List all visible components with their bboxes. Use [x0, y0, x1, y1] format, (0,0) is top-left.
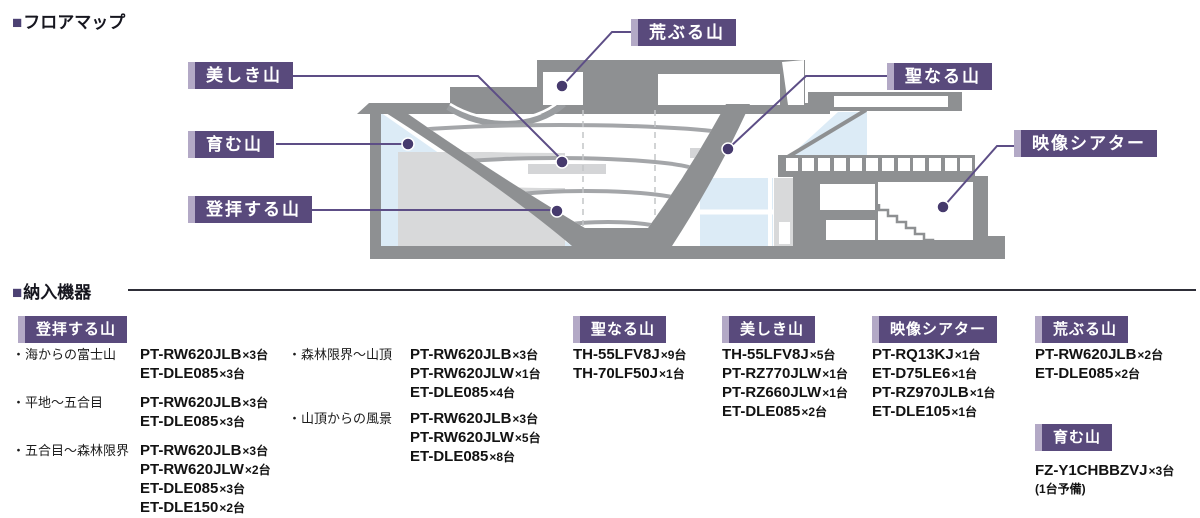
quantity: ×8台 — [489, 450, 515, 464]
model-number: PT-RW620JLW — [410, 429, 514, 446]
equipment-list: PT-RW620JLB×3台 ET-DLE085×3台 — [140, 345, 268, 383]
equipment-item: PT-RW620JLB×2台 — [1035, 345, 1163, 364]
eq-header-utsukushiki: 美しき山 — [722, 316, 815, 343]
model-number: ET-DLE085 — [410, 384, 488, 401]
equipment-item: TH-55LFV8J×9台 — [573, 345, 686, 364]
equipment-list: PT-RW620JLB×3台 PT-RW620JLW×5台 ET-DLE085×… — [410, 409, 541, 466]
eq-header-label: 荒ぶる山 — [1053, 321, 1117, 338]
quantity: ×2台 — [801, 405, 827, 419]
divider-rule — [128, 289, 1196, 291]
equipment-list: TH-55LFV8J×5台 PT-RZ770JLW×1台 PT-RZ660JLW… — [722, 345, 848, 421]
callout-utsukushiki-yama: 美しき山 — [188, 62, 293, 89]
equipment-item: ET-DLE085×2台 — [1035, 364, 1163, 383]
quantity: ×1台 — [951, 367, 977, 381]
model-number: PT-RZ970JLB — [872, 384, 969, 401]
quantity: ×3台 — [242, 348, 268, 362]
equipment-item: PT-RQ13KJ×1台 — [872, 345, 995, 364]
quantity: ×1台 — [515, 367, 541, 381]
equipment-note: (1台予備) — [1035, 481, 1086, 497]
equipment-item: ET-DLE085×2台 — [722, 402, 848, 421]
eq-header-araburu: 荒ぶる山 — [1035, 316, 1128, 343]
callout-label: 登拝する山 — [206, 200, 301, 219]
quantity: ×2台 — [1114, 367, 1140, 381]
equipment-item: PT-RW620JLB×3台 — [140, 393, 268, 412]
model-number: ET-DLE105 — [872, 403, 950, 420]
model-number: PT-RW620JLB — [140, 346, 241, 363]
quantity: ×3台 — [1149, 464, 1175, 478]
equipment-item: PT-RZ770JLW×1台 — [722, 364, 848, 383]
model-number: FZ-Y1CHBBZVJ — [1035, 462, 1148, 479]
model-number: PT-RZ770JLW — [722, 365, 821, 382]
equipment-list: TH-55LFV8J×9台 TH-70LF50J×1台 — [573, 345, 686, 383]
dot-tohai — [551, 205, 563, 217]
equipment-list: PT-RW620JLB×2台 ET-DLE085×2台 — [1035, 345, 1163, 383]
eq-header-eizo: 映像シアター — [872, 316, 997, 343]
area-label: ・山頂からの風景 — [288, 409, 392, 428]
eq-header-label: 聖なる山 — [591, 321, 655, 338]
eq-header-seinaru: 聖なる山 — [573, 316, 666, 343]
equipment-item: ET-D75LE6×1台 — [872, 364, 995, 383]
quantity: ×1台 — [951, 405, 977, 419]
model-number: ET-DLE085 — [410, 448, 488, 465]
eq-header-label: 登拝する山 — [36, 321, 116, 338]
equipment-item: PT-RW620JLB×3台 — [140, 441, 271, 460]
equipment-item: ET-DLE085×4台 — [410, 383, 541, 402]
equipment-item: ET-DLE085×3台 — [140, 479, 271, 498]
theater-block — [793, 176, 988, 250]
model-number: PT-RW620JLW — [410, 365, 514, 382]
model-number: PT-RW620JLB — [1035, 346, 1136, 363]
equipment-list: PT-RW620JLB×3台 ET-DLE085×3台 — [140, 393, 268, 431]
equipment-item: PT-RZ660JLW×1台 — [722, 383, 848, 402]
model-number: ET-DLE085 — [1035, 365, 1113, 382]
equipment-list: PT-RW620JLB×3台 PT-RW620JLW×1台 ET-DLE085×… — [410, 345, 541, 402]
equipment-item: PT-RW620JLB×3台 — [410, 345, 541, 364]
dot-utsukushiki — [556, 156, 568, 168]
quantity: ×5台 — [515, 431, 541, 445]
model-number: PT-RW620JLB — [140, 394, 241, 411]
equipment-title-text: 納入機器 — [23, 283, 91, 302]
equipment-item: PT-RW620JLB×3台 — [410, 409, 541, 428]
model-number: PT-RQ13KJ — [872, 346, 954, 363]
callout-eizo-theater: 映像シアター — [1014, 130, 1157, 157]
dot-araburu — [556, 80, 568, 92]
equipment-item: PT-RW620JLW×5台 — [410, 428, 541, 447]
eq-header-label: 育む山 — [1053, 429, 1101, 446]
equipment-title: ■納入機器 — [12, 278, 91, 303]
quantity: ×1台 — [970, 386, 996, 400]
model-number: TH-70LF50J — [573, 365, 658, 382]
equipment-item: ET-DLE150×2台 — [140, 498, 271, 517]
model-number: ET-DLE085 — [140, 480, 218, 497]
area-label: ・海からの富士山 — [12, 345, 116, 364]
model-number: TH-55LFV8J — [722, 346, 809, 363]
equipment-list: FZ-Y1CHBBZVJ×3台 — [1035, 461, 1174, 480]
quantity: ×1台 — [822, 386, 848, 400]
eq-header-label: 美しき山 — [740, 321, 804, 338]
callout-label: 荒ぶる山 — [649, 23, 725, 42]
quantity: ×4台 — [489, 386, 515, 400]
quantity: ×3台 — [242, 444, 268, 458]
quantity: ×3台 — [242, 396, 268, 410]
callout-tohai-suru-yama: 登拝する山 — [188, 196, 312, 223]
equipment-item: PT-RW620JLW×2台 — [140, 460, 271, 479]
eq-header-tohai: 登拝する山 — [18, 316, 127, 343]
eq-header-hagukumu: 育む山 — [1035, 424, 1112, 451]
dot-eizo — [937, 201, 949, 213]
quantity: ×3台 — [219, 415, 245, 429]
quantity: ×3台 — [219, 482, 245, 496]
quantity: ×3台 — [219, 367, 245, 381]
callout-label: 聖なる山 — [905, 67, 981, 86]
eq-header-label: 映像シアター — [890, 321, 986, 338]
callout-label: 育む山 — [206, 135, 263, 154]
quantity: ×2台 — [245, 463, 271, 477]
quantity: ×3台 — [512, 348, 538, 362]
area-label: ・森林限界～山頂 — [288, 345, 392, 364]
dot-hagukumu — [402, 138, 414, 150]
model-number: PT-RZ660JLW — [722, 384, 821, 401]
equipment-item: ET-DLE105×1台 — [872, 402, 995, 421]
model-number: PT-RW620JLB — [140, 442, 241, 459]
model-number: PT-RW620JLW — [140, 461, 244, 478]
quantity: ×3台 — [512, 412, 538, 426]
equipment-item: PT-RW620JLW×1台 — [410, 364, 541, 383]
callout-label: 映像シアター — [1032, 134, 1146, 153]
quantity: ×9台 — [661, 348, 687, 362]
area-label: ・五合目～森林限界 — [12, 441, 129, 460]
model-number: ET-DLE085 — [722, 403, 800, 420]
equipment-item: TH-55LFV8J×5台 — [722, 345, 848, 364]
equipment-list: PT-RW620JLB×3台 PT-RW620JLW×2台 ET-DLE085×… — [140, 441, 271, 517]
callout-araburu-yama: 荒ぶる山 — [631, 19, 736, 46]
equipment-list: PT-RQ13KJ×1台 ET-D75LE6×1台 PT-RZ970JLB×1台… — [872, 345, 995, 421]
model-number: PT-RW620JLB — [410, 410, 511, 427]
callout-label: 美しき山 — [206, 66, 282, 85]
quantity: ×2台 — [1137, 348, 1163, 362]
callout-hagukumu-yama: 育む山 — [188, 131, 274, 158]
area-label: ・平地～五合目 — [12, 393, 103, 412]
equipment-item: PT-RZ970JLB×1台 — [872, 383, 995, 402]
page: { "colors": { "accent": "#594a7c", "acce… — [0, 0, 1200, 517]
quantity: ×1台 — [822, 367, 848, 381]
equipment-item: ET-DLE085×3台 — [140, 364, 268, 383]
quantity: ×1台 — [955, 348, 981, 362]
equipment-item: PT-RW620JLB×3台 — [140, 345, 268, 364]
quantity: ×5台 — [810, 348, 836, 362]
equipment-item: ET-DLE085×8台 — [410, 447, 541, 466]
equipment-item: FZ-Y1CHBBZVJ×3台 — [1035, 461, 1174, 480]
model-number: ET-DLE085 — [140, 413, 218, 430]
model-number: PT-RW620JLB — [410, 346, 511, 363]
model-number: ET-D75LE6 — [872, 365, 950, 382]
equipment-item: ET-DLE085×3台 — [140, 412, 268, 431]
equipment-item: TH-70LF50J×1台 — [573, 364, 686, 383]
model-number: ET-DLE150 — [140, 499, 218, 516]
dot-seinaru — [722, 143, 734, 155]
model-number: TH-55LFV8J — [573, 346, 660, 363]
model-number: ET-DLE085 — [140, 365, 218, 382]
quantity: ×2台 — [219, 501, 245, 515]
section-marker-icon: ■ — [12, 283, 22, 302]
quantity: ×1台 — [659, 367, 685, 381]
callout-seinaru-yama: 聖なる山 — [887, 63, 992, 90]
